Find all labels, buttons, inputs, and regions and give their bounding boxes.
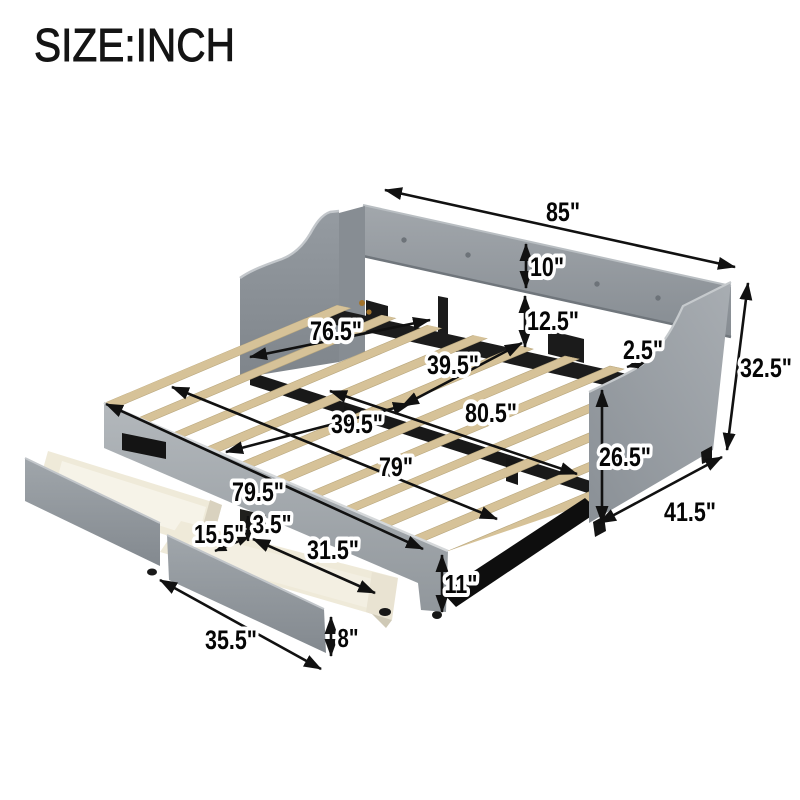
- svg-text:26.5": 26.5": [599, 442, 651, 472]
- svg-text:79": 79": [379, 452, 413, 482]
- svg-text:10": 10": [530, 252, 564, 282]
- svg-text:80.5": 80.5": [465, 398, 517, 428]
- svg-text:39.5": 39.5": [427, 350, 479, 380]
- svg-text:31.5": 31.5": [307, 535, 359, 565]
- svg-text:11": 11": [445, 569, 478, 599]
- svg-text:2.5": 2.5": [623, 335, 663, 365]
- svg-text:35.5": 35.5": [205, 625, 257, 655]
- svg-text:32.5": 32.5": [740, 353, 792, 383]
- svg-text:15.5": 15.5": [194, 519, 244, 549]
- svg-text:85": 85": [546, 197, 580, 227]
- svg-text:39.5": 39.5": [331, 409, 383, 439]
- svg-text:76.5": 76.5": [310, 316, 362, 346]
- svg-text:41.5": 41.5": [664, 497, 716, 527]
- svg-text:8": 8": [338, 623, 359, 653]
- svg-text:SIZE:INCH: SIZE:INCH: [34, 19, 235, 71]
- svg-text:12.5": 12.5": [527, 306, 579, 336]
- svg-text:79.5": 79.5": [232, 477, 284, 507]
- svg-text:3.5": 3.5": [253, 509, 292, 539]
